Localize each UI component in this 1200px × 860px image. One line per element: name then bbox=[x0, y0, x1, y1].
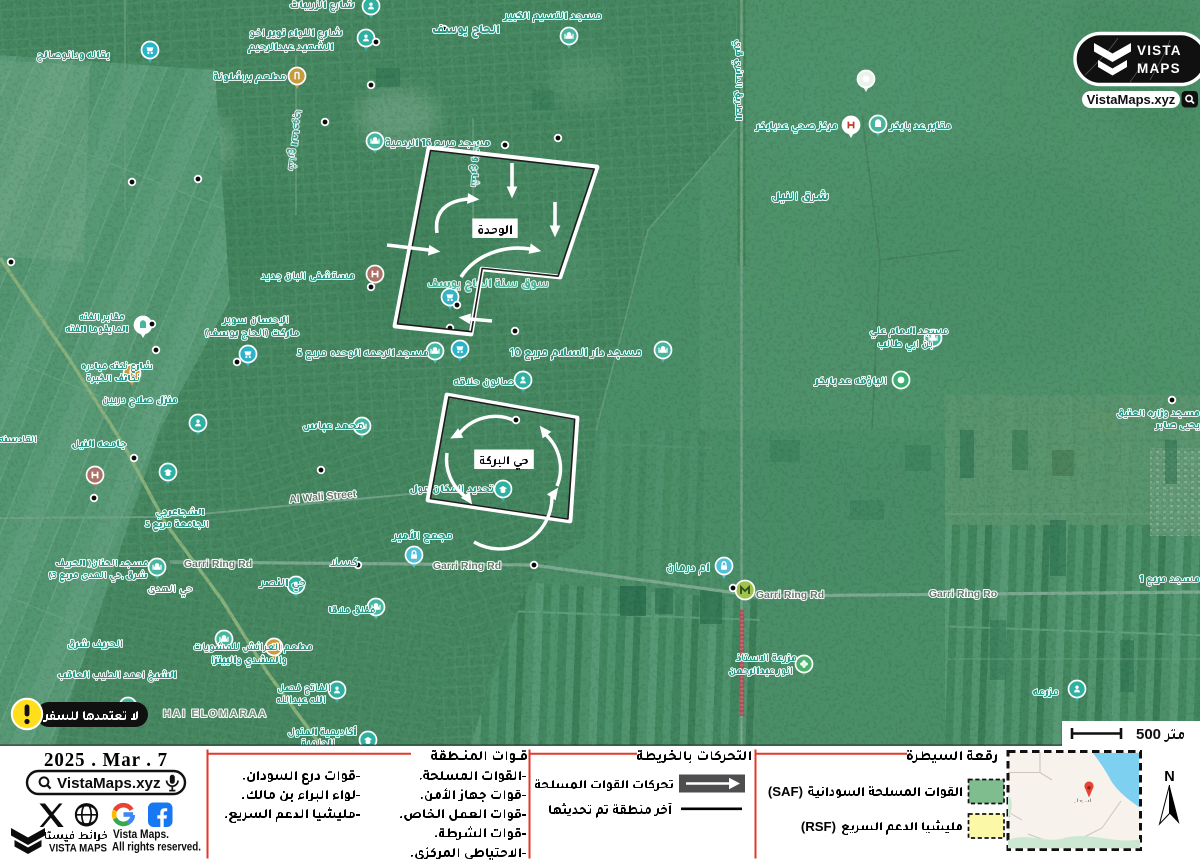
svg-text:VISTA MAPS: VISTA MAPS bbox=[49, 843, 107, 855]
svg-text:All rights reserved.: All rights reserved. bbox=[112, 840, 201, 854]
svg-text:VistaMaps.xyz: VistaMaps.xyz bbox=[57, 775, 161, 792]
svg-text:Garri Ring Rd: Garri Ring Rd bbox=[433, 560, 501, 572]
svg-text:Garri Ring Rd: Garri Ring Rd bbox=[756, 589, 824, 601]
svg-text:(RSF): (RSF) bbox=[801, 819, 836, 834]
svg-text:Garri Ring Rd: Garri Ring Rd bbox=[184, 558, 252, 570]
svg-text:MAPS: MAPS bbox=[1137, 61, 1181, 76]
svg-text:500: 500 bbox=[1136, 726, 1161, 743]
svg-text:VistaMaps.xyz: VistaMaps.xyz bbox=[1087, 92, 1176, 107]
svg-text:(SAF): (SAF) bbox=[768, 784, 803, 799]
svg-text:HAI ELOMARAA: HAI ELOMARAA bbox=[163, 708, 268, 720]
svg-text:VISTA: VISTA bbox=[1137, 43, 1182, 58]
svg-text:N: N bbox=[1164, 769, 1174, 785]
svg-text:Garri Ring Ro: Garri Ring Ro bbox=[929, 588, 997, 600]
svg-text:2025 . Mar . 7: 2025 . Mar . 7 bbox=[44, 749, 168, 771]
